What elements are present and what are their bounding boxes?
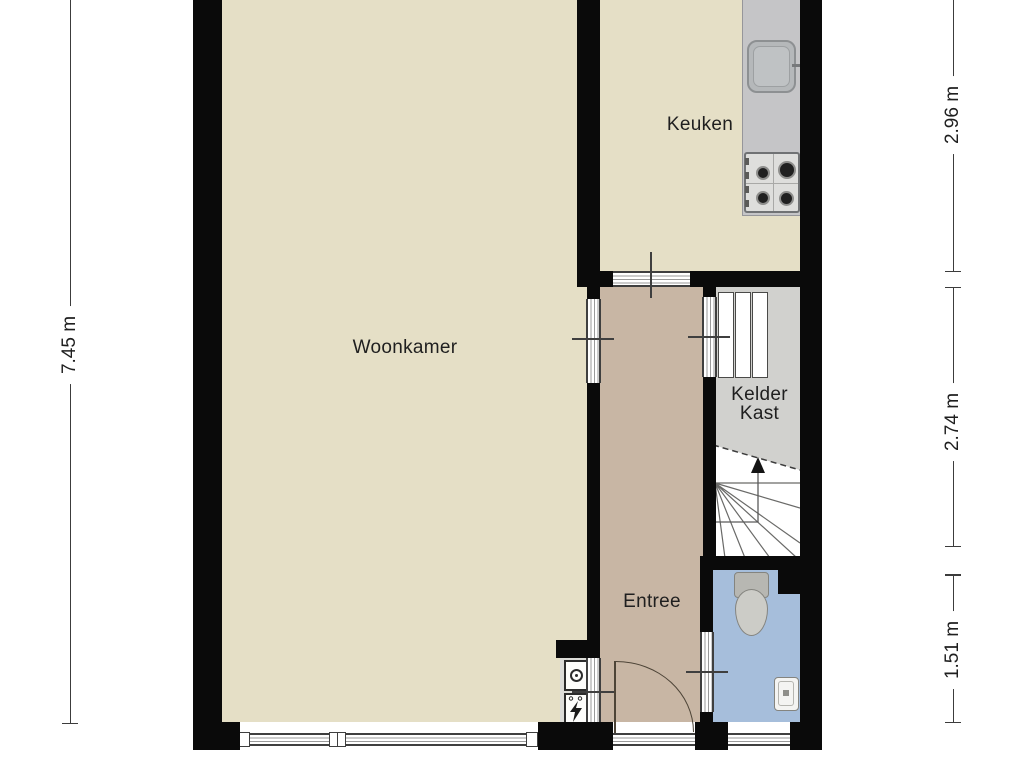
wall-under-keuken <box>587 271 613 287</box>
wall-right-outer <box>800 0 822 750</box>
window-woonkamer <box>238 733 538 746</box>
wall-left-outer <box>193 0 222 750</box>
dimension-label-left: 7.45 m <box>56 306 84 384</box>
wall-bottom <box>695 722 728 750</box>
window-tick <box>572 691 614 693</box>
front-door-threshold <box>613 733 695 746</box>
dimension-tick <box>62 723 78 725</box>
electricity-meter-icon <box>564 693 588 724</box>
wall-bottom <box>193 722 240 750</box>
wall-entree-left <box>587 383 600 640</box>
stove-knob-icon <box>745 200 749 207</box>
stove-knob-icon <box>745 186 749 193</box>
dimension-tick <box>945 287 961 289</box>
water-meter-icon <box>564 660 588 691</box>
label-entree: Entree <box>602 591 702 613</box>
washbasin-icon <box>774 677 799 711</box>
closet-shelf-icon <box>752 292 768 378</box>
dimension-tick <box>945 722 961 724</box>
label-kelder: Kelder <box>713 385 806 404</box>
wall-keuken-left <box>577 0 600 287</box>
window-tick <box>688 336 730 338</box>
room-woonkamer <box>222 0 587 722</box>
dimension-tick <box>945 574 961 576</box>
dimension-label-right-bottom: 1.51 m <box>939 611 967 689</box>
dimension-tick <box>945 271 961 273</box>
stove-knob-icon <box>745 172 749 179</box>
window-post <box>526 732 538 747</box>
window-tick <box>650 252 652 298</box>
wall-bottom <box>538 722 613 750</box>
dimension-label-right-top: 2.96 m <box>939 76 967 154</box>
door-entree-keuken <box>613 271 690 287</box>
window-post <box>337 732 346 747</box>
stove-knob-icon <box>745 158 749 165</box>
window-tick <box>686 671 728 673</box>
wall-stairs-left <box>703 287 716 297</box>
label-keuken: Keuken <box>630 114 770 136</box>
wall-toilet-left <box>700 712 713 722</box>
floor-plan: Woonkamer Keuken Entree Kelder Kast 7.45… <box>0 0 1024 768</box>
closet-shelf-icon <box>735 292 751 378</box>
wall-meterkast-top <box>556 640 600 658</box>
window-tick <box>572 338 614 340</box>
door-meterkast <box>586 658 601 722</box>
wall-toilet-stub <box>778 570 800 594</box>
stove-icon <box>744 152 800 213</box>
wall-under-keuken <box>690 271 822 287</box>
closet-shelf-icon <box>718 292 734 378</box>
wall-bottom <box>790 722 822 750</box>
dimension-tick <box>945 546 961 548</box>
kitchen-sink-icon <box>747 40 796 93</box>
dimension-label-right-middle: 2.74 m <box>939 383 967 461</box>
wall-entree-left <box>587 287 600 299</box>
label-kelder-kast: Kelder Kast <box>713 385 806 423</box>
room-entree <box>600 287 703 722</box>
door-woonkamer-entree <box>586 299 601 383</box>
wall-toilet-top <box>700 556 800 570</box>
label-kast: Kast <box>713 404 806 423</box>
label-woonkamer: Woonkamer <box>305 337 505 359</box>
window-toilet <box>728 733 790 746</box>
